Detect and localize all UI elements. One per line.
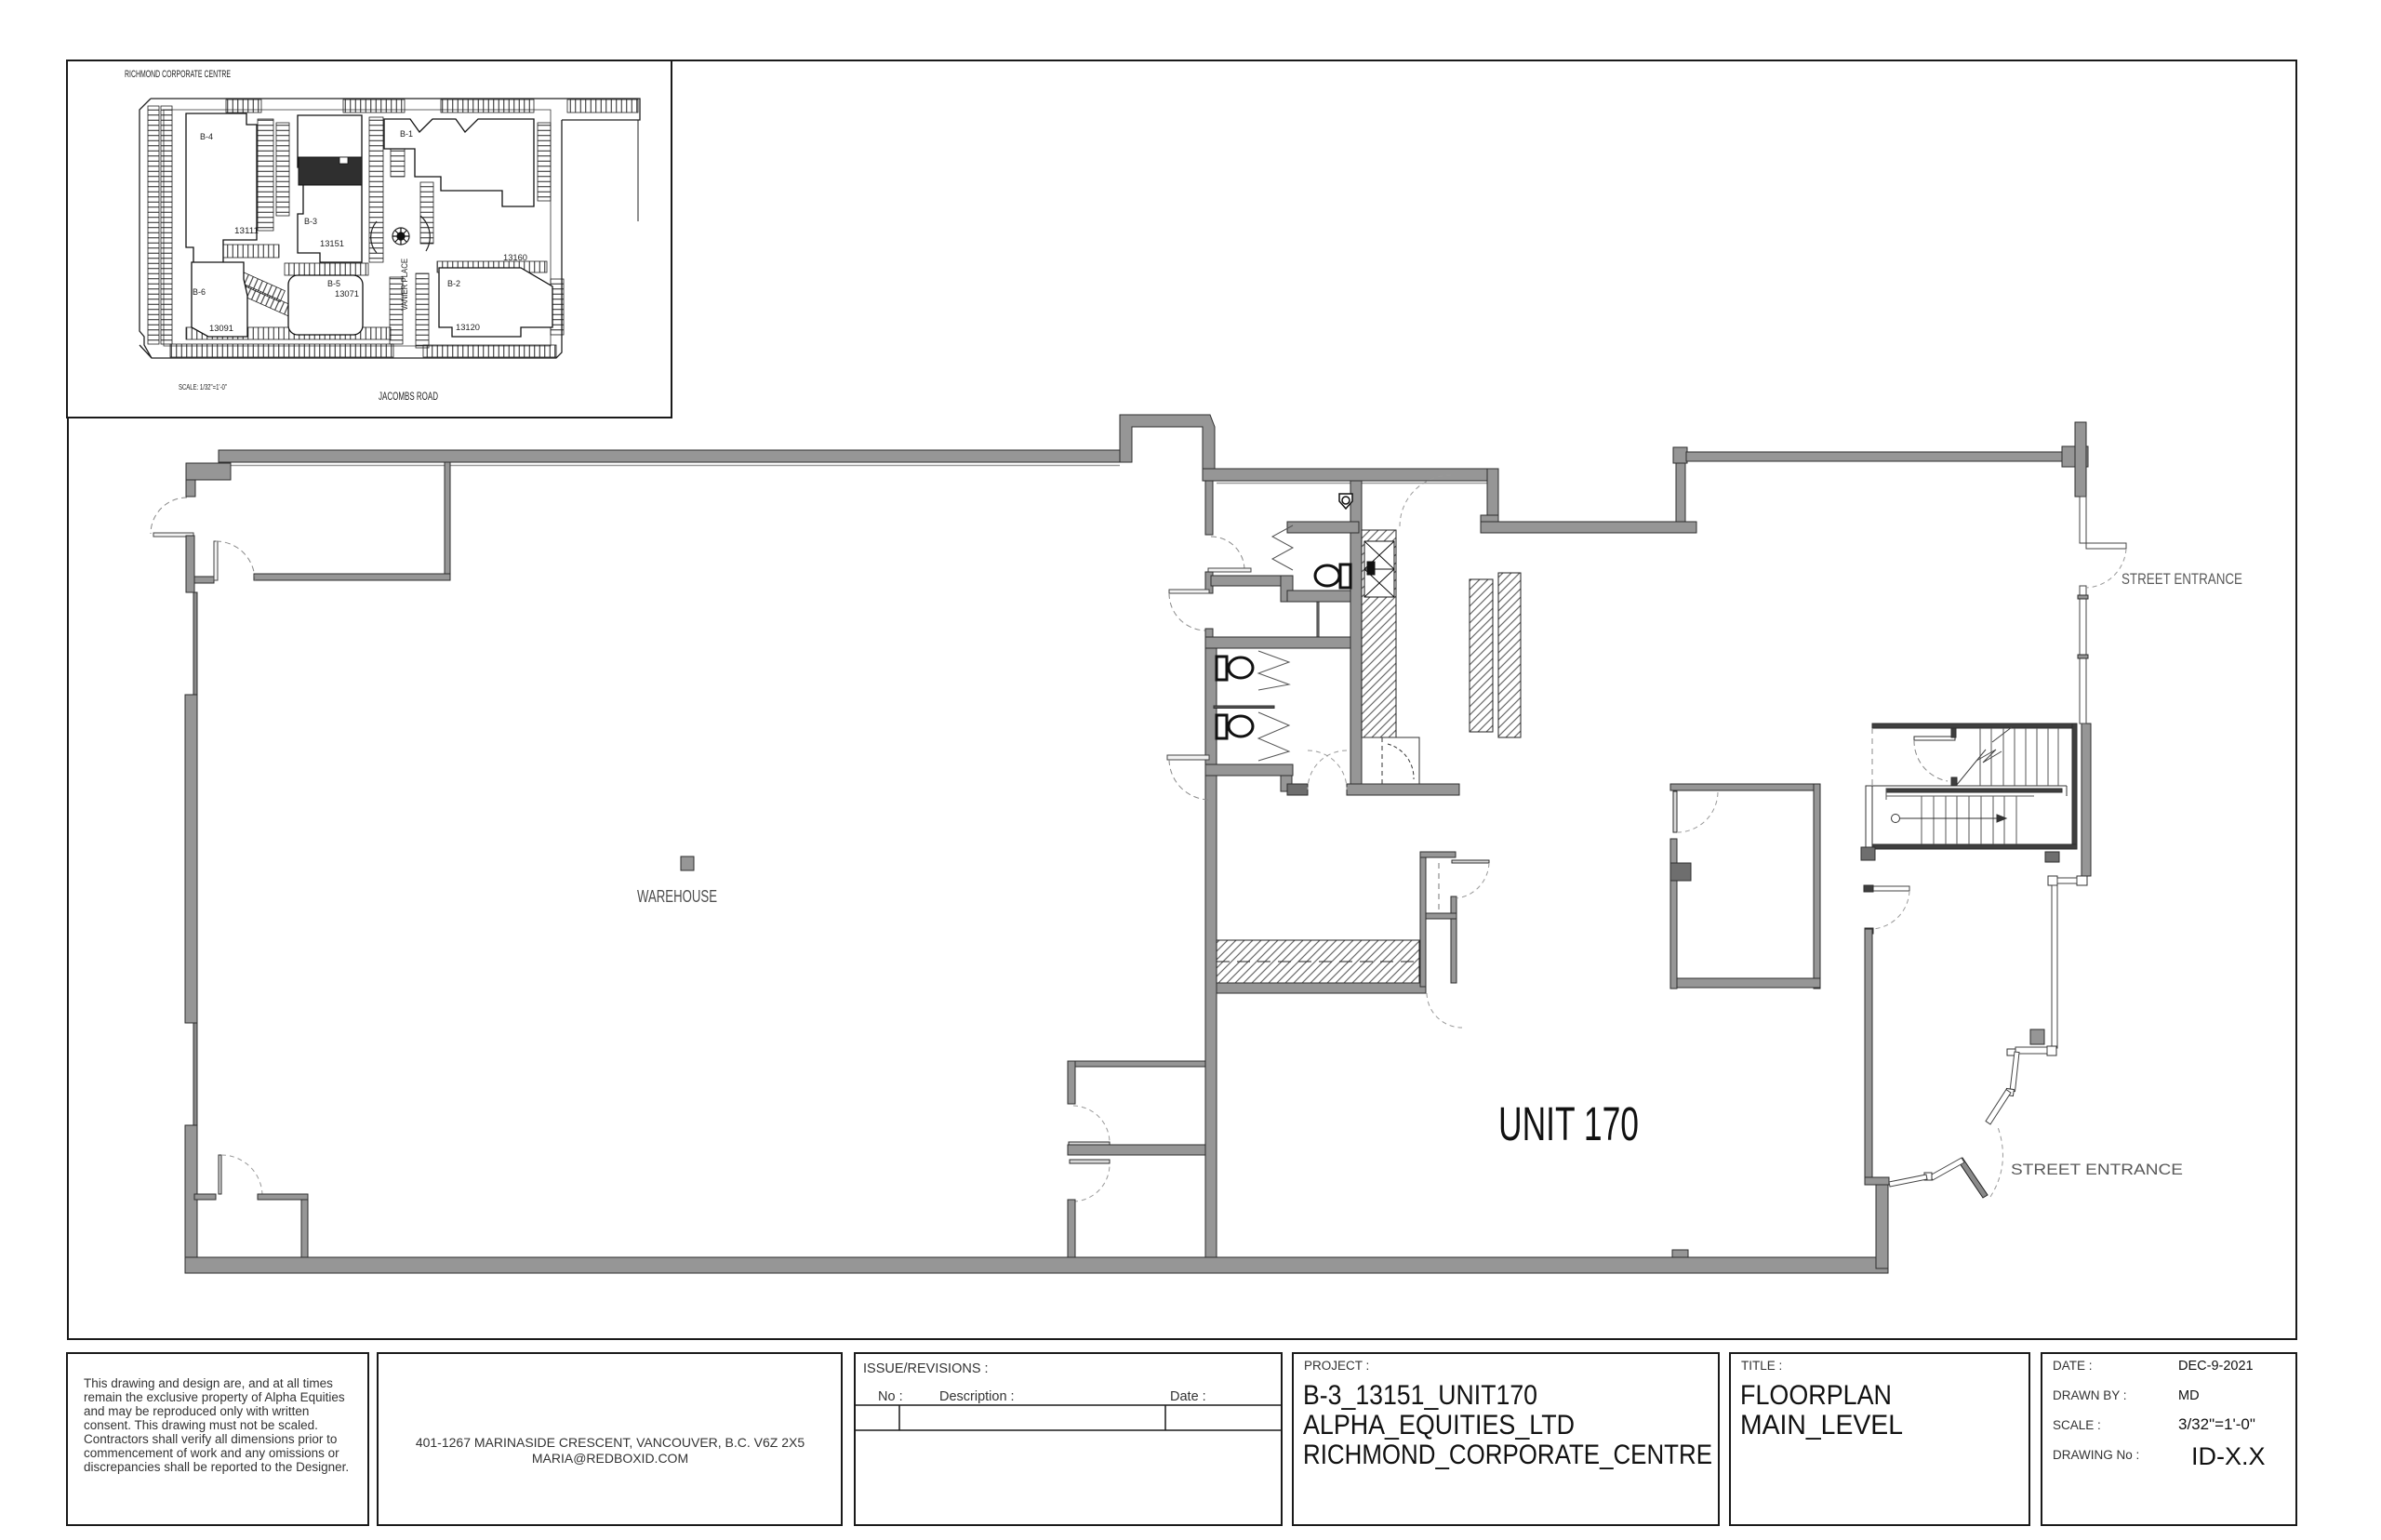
svg-text:13071: 13071 — [335, 289, 359, 299]
svg-text:No :: No : — [878, 1389, 903, 1404]
svg-text:MARIA@REDBOXID.COM: MARIA@REDBOXID.COM — [532, 1451, 688, 1466]
svg-text:DATE :: DATE : — [2053, 1359, 2093, 1373]
svg-text:and may be reproduced only wit: and may be reproduced only with written — [84, 1404, 309, 1418]
svg-text:WAREHOUSE: WAREHOUSE — [637, 887, 717, 906]
svg-text:PROJECT :: PROJECT : — [1304, 1359, 1369, 1373]
svg-text:B-4: B-4 — [200, 132, 213, 141]
svg-text:Contractors shall verify all d: Contractors shall verify all dimensions … — [84, 1432, 337, 1446]
svg-text:VANIER PLACE: VANIER PLACE — [400, 259, 409, 311]
svg-text:13091: 13091 — [209, 324, 233, 333]
svg-text:MAIN_LEVEL: MAIN_LEVEL — [1740, 1410, 1903, 1440]
svg-text:DRAWN BY :: DRAWN BY : — [2053, 1388, 2127, 1402]
svg-text:SCALE: 1/32"=1'-0": SCALE: 1/32"=1'-0" — [179, 383, 227, 392]
svg-text:B-1: B-1 — [400, 129, 413, 139]
svg-text:DRAWING No :: DRAWING No : — [2053, 1448, 2139, 1462]
svg-text:commencement of work and any o: commencement of work and any omissions o… — [84, 1446, 339, 1460]
svg-text:RICHMOND CORPORATE CENTRE: RICHMOND CORPORATE CENTRE — [125, 69, 231, 80]
svg-text:B-3: B-3 — [304, 217, 317, 226]
svg-text:STREET ENTRANCE: STREET ENTRANCE — [2011, 1161, 2183, 1178]
svg-text:FLOORPLAN: FLOORPLAN — [1740, 1380, 1892, 1411]
svg-text:13120: 13120 — [456, 323, 480, 332]
svg-text:13160: 13160 — [503, 253, 527, 262]
svg-text:JACOMBS ROAD: JACOMBS ROAD — [379, 390, 438, 403]
svg-text:SCALE :: SCALE : — [2053, 1418, 2101, 1432]
svg-text:This drawing and design are, a: This drawing and design are, and at all … — [84, 1376, 333, 1390]
svg-text:3/32"=1'-0": 3/32"=1'-0" — [2178, 1415, 2255, 1433]
svg-text:ISSUE/REVISIONS :: ISSUE/REVISIONS : — [863, 1361, 989, 1376]
svg-text:DEC-9-2021: DEC-9-2021 — [2178, 1359, 2254, 1374]
svg-text:ID-X.X: ID-X.X — [2191, 1442, 2266, 1470]
svg-text:Description :: Description : — [939, 1389, 1015, 1404]
svg-text:ALPHA_EQUITIES_LTD: ALPHA_EQUITIES_LTD — [1303, 1410, 1575, 1440]
svg-text:TITLE :: TITLE : — [1741, 1359, 1782, 1373]
svg-text:UNIT 170: UNIT 170 — [1498, 1097, 1639, 1150]
svg-text:RICHMOND_CORPORATE_CENTRE: RICHMOND_CORPORATE_CENTRE — [1303, 1440, 1712, 1470]
svg-text:MD: MD — [2178, 1388, 2200, 1403]
svg-text:STREET ENTRANCE: STREET ENTRANCE — [2122, 570, 2242, 588]
svg-text:B-5: B-5 — [327, 279, 340, 288]
svg-text:consent. This drawing must not: consent. This drawing must not be scaled… — [84, 1418, 318, 1432]
svg-text:B-3_13151_UNIT170: B-3_13151_UNIT170 — [1303, 1380, 1537, 1411]
svg-text:13151: 13151 — [320, 239, 344, 248]
svg-text:remain the exclusive property: remain the exclusive property of Alpha E… — [84, 1390, 345, 1404]
svg-text:B-2: B-2 — [447, 279, 460, 288]
svg-text:401-1267 MARINASIDE CRESCENT,: 401-1267 MARINASIDE CRESCENT, VANCOUVER,… — [416, 1435, 805, 1450]
svg-text:Date :: Date : — [1170, 1389, 1206, 1404]
svg-text:B-6: B-6 — [193, 287, 206, 297]
svg-text:13111: 13111 — [234, 226, 259, 235]
svg-text:discrepancies shall be reporte: discrepancies shall be reported to the D… — [84, 1460, 349, 1474]
